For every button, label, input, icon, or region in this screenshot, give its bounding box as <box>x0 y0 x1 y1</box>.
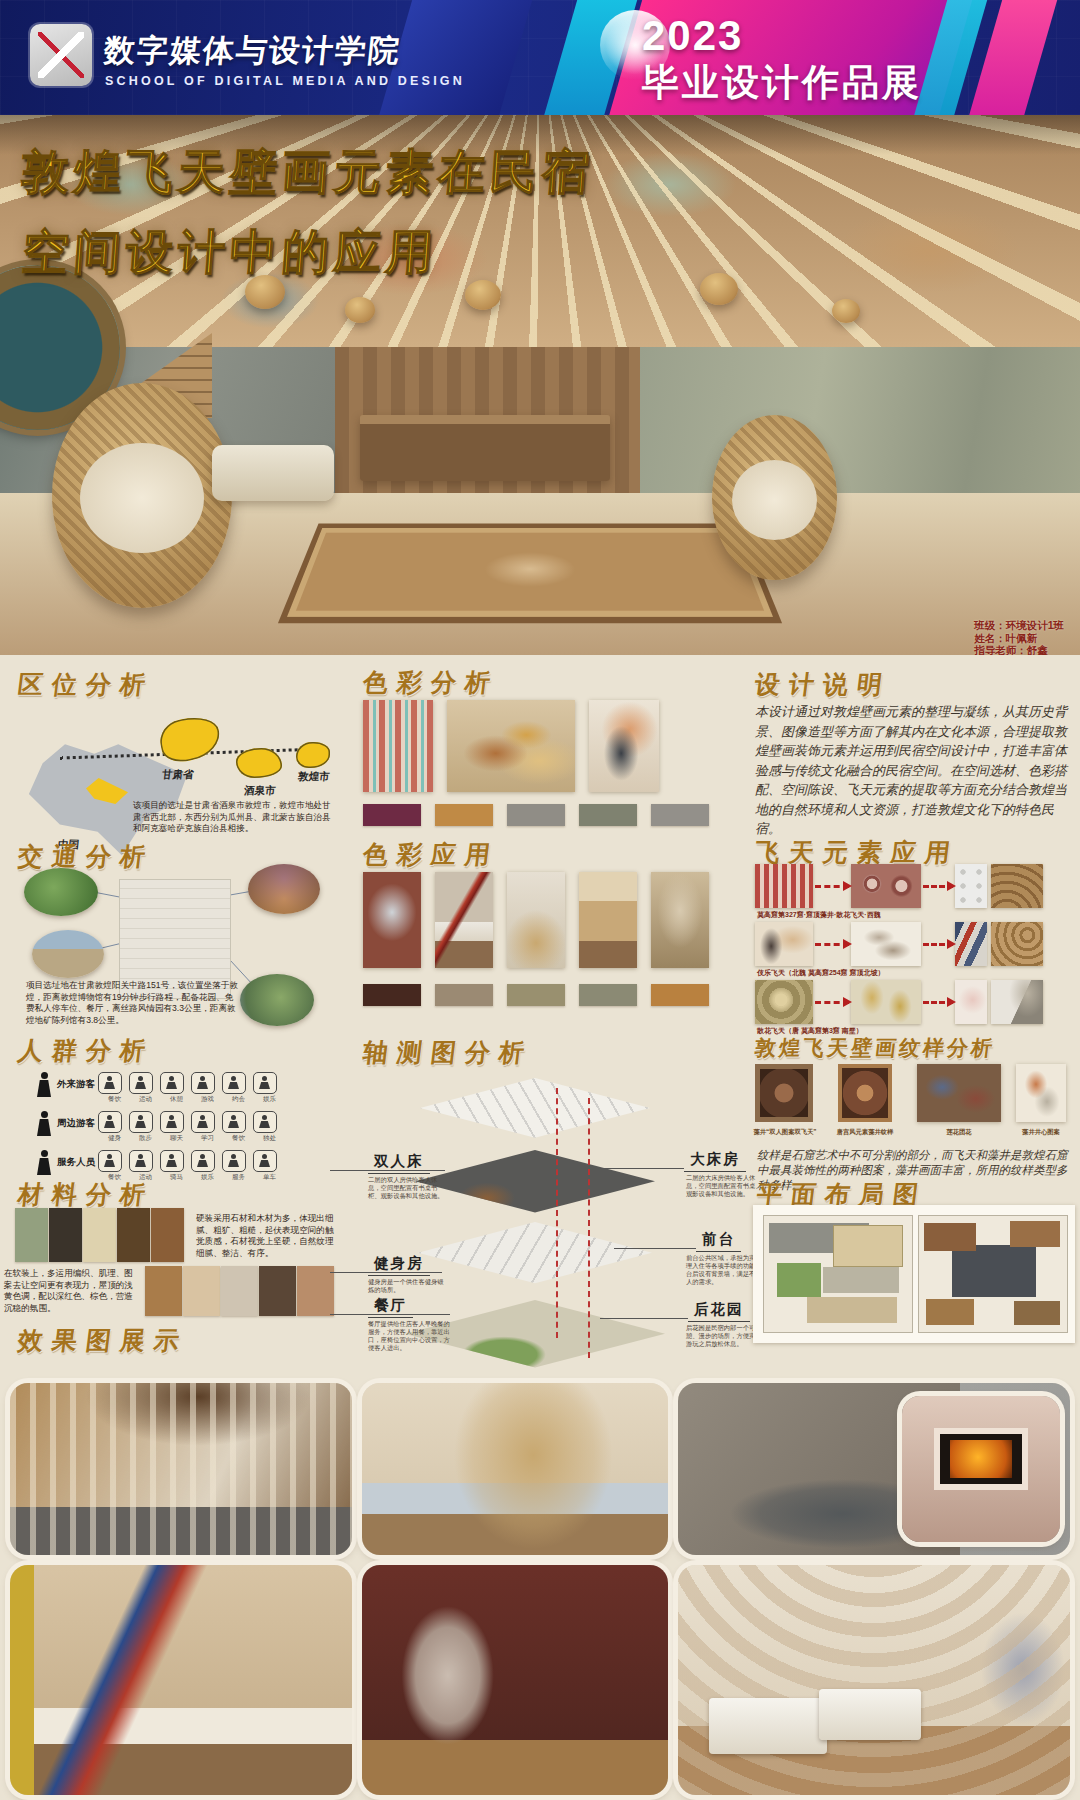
section-title-design-note: 设计说明 <box>753 668 893 701</box>
mural-source-image <box>755 864 813 908</box>
color-swatch <box>507 984 565 1006</box>
color-swatch <box>507 804 565 826</box>
axon-label-back-garden: 后花园 <box>688 1300 750 1322</box>
interior-photo-rattan-chair <box>507 872 565 968</box>
interior-photo-reception <box>579 872 637 968</box>
color-swatch <box>363 804 421 826</box>
plan-room-brown <box>926 1299 974 1325</box>
pattern-caption-4: 藻井井心图案 <box>1010 1128 1072 1137</box>
photo-aerial-oval <box>240 974 314 1026</box>
activity-label: 聊天 <box>170 1134 183 1143</box>
activity-label: 餐饮 <box>232 1134 245 1143</box>
person-icon <box>36 1150 52 1176</box>
activity-cell: 休憩 <box>161 1072 192 1104</box>
activity-cell: 散步 <box>130 1111 161 1143</box>
leader-line <box>330 1170 445 1171</box>
activity-label: 散步 <box>139 1134 152 1143</box>
axon-label-front-desk: 前台 <box>696 1230 741 1252</box>
activity-pictogram-icon <box>222 1072 246 1094</box>
location-text: 该项目的选址是甘肃省酒泉市敦煌市，敦煌市地处甘肃省西北部，东西分别为瓜州县、肃北… <box>133 800 335 835</box>
color-swatch <box>651 984 709 1006</box>
color-swatch <box>435 804 493 826</box>
activity-pictogram-icon <box>191 1150 215 1172</box>
section-title-color-application: 色彩应用 <box>361 838 501 871</box>
floor-plan-level1 <box>763 1215 913 1333</box>
analysis-color-swatches <box>363 804 723 826</box>
poster-title-line2: 空间设计中的应用 <box>20 221 440 284</box>
mural-photo-2 <box>447 700 575 792</box>
axon-desc-king-room: 二层的大床房供给客人休息，空间里面配置有书桌、观影设备和其他设施。 <box>686 1174 766 1198</box>
map-label-jiuquan: 酒泉市 <box>243 784 276 798</box>
activity-label: 游戏 <box>201 1095 214 1104</box>
section-title-axonometric: 轴测图分析 <box>361 1036 535 1069</box>
soft-material-swatches <box>145 1266 335 1316</box>
activity-pictogram-icon <box>129 1072 153 1094</box>
render-tv-lounge-inset <box>902 1396 1060 1542</box>
material-swatch <box>183 1266 220 1316</box>
section-title-location: 区位分析 <box>16 668 156 701</box>
axon-desc-double-room: 二层的双人房供给客人休息，空间里配置有书桌书柜、观影设备和其他设施。 <box>368 1176 444 1200</box>
activity-pictogram-icon <box>191 1072 215 1094</box>
interior-photo-corridor <box>651 872 709 968</box>
jiuquan-city-shape <box>236 748 282 778</box>
header-banner: 数字媒体与设计学院 SCHOOL OF DIGITAL MEDIA AND DE… <box>0 0 1080 115</box>
activity-cell: 服务 <box>223 1150 254 1182</box>
activity-pictogram-icon <box>129 1111 153 1133</box>
dunhuang-city-shape <box>296 742 330 768</box>
activity-pictogram-icon <box>253 1072 277 1094</box>
activity-cell: 运动 <box>130 1072 161 1104</box>
material-hard-text: 硬装采用石材和木材为多，体现出细腻、粗犷、粗糙，起伏表现空间的触觉质感，石材视觉… <box>196 1213 336 1259</box>
pattern-caption-3: 莲花团花 <box>925 1128 993 1137</box>
activity-pictogram-icon <box>98 1150 122 1172</box>
activity-cell: 娱乐 <box>254 1072 285 1104</box>
credit-class: 班级：环境设计1班 <box>974 619 1064 632</box>
crowd-group-label: 周边游客 <box>57 1117 99 1130</box>
axon-guide-line <box>588 1098 590 1358</box>
floor-plan-panel <box>753 1205 1075 1343</box>
activity-cell: 聊天 <box>161 1111 192 1143</box>
plan-room-brown <box>924 1223 976 1251</box>
credit-tutor: 指导老师：舒鑫 <box>974 644 1064 655</box>
axon-guide-line <box>556 1088 558 1338</box>
application-image-2 <box>991 980 1043 1024</box>
activity-cell: 独处 <box>254 1111 285 1143</box>
activity-label: 单车 <box>263 1173 276 1182</box>
color-swatch <box>363 984 421 1006</box>
leader-line <box>330 1314 450 1315</box>
chair-cushion <box>80 443 204 553</box>
activity-label: 健身 <box>108 1134 121 1143</box>
activity-cell: 健身 <box>99 1111 130 1143</box>
activity-pictogram-icon <box>253 1111 277 1133</box>
color-swatch <box>651 804 709 826</box>
school-name-cn: 数字媒体与设计学院 <box>102 30 403 72</box>
pendant-lamp <box>465 280 501 310</box>
arrow-right-icon <box>923 1001 953 1004</box>
activity-label: 餐饮 <box>108 1095 121 1104</box>
activity-label: 休憩 <box>170 1095 183 1104</box>
leader-line <box>330 1272 442 1273</box>
floor-plan-level2 <box>918 1215 1068 1333</box>
hero-lobby-image: 敦煌飞天壁画元素在民宿 空间设计中的应用 班级：环境设计1班 姓名：叶佩新 指导… <box>0 115 1080 655</box>
pattern-photo-4 <box>1016 1064 1066 1122</box>
pendant-lamp <box>700 273 738 305</box>
fly-row-3 <box>755 980 1077 1024</box>
pattern-photo-1 <box>755 1064 813 1122</box>
mural-photo-1 <box>363 700 433 792</box>
interior-photo-mural-bedroom <box>435 872 493 968</box>
plan-core-zone <box>952 1245 1036 1297</box>
section-title-material: 材料分析 <box>16 1178 156 1211</box>
section-title-pattern-analysis: 敦煌飞天壁画纹样分析 <box>753 1034 996 1062</box>
pattern-photo-3 <box>917 1064 1001 1122</box>
poster: 数字媒体与设计学院 SCHOOL OF DIGITAL MEDIA AND DE… <box>0 0 1080 1800</box>
fly-row-1 <box>755 864 1077 908</box>
school-logo <box>30 24 92 86</box>
crowd-row-tourist-nearby: 周边游客健身散步聊天学习餐饮独处 <box>36 1111 336 1143</box>
color-swatch <box>579 804 637 826</box>
fly-row-caption: 伎乐飞天（北魏 莫高窟254窟 窟顶北坡） <box>757 968 885 978</box>
pendant-lamp <box>345 297 375 323</box>
photo-garden-oval <box>24 868 98 916</box>
application-image-2 <box>991 864 1043 908</box>
activity-label: 骑马 <box>170 1173 183 1182</box>
plan-garden-lawn <box>777 1263 821 1297</box>
leader-line <box>614 1248 696 1249</box>
activity-cell: 餐饮 <box>99 1072 130 1104</box>
activity-pictogram-icon <box>191 1111 215 1133</box>
activity-cell: 游戏 <box>192 1072 223 1104</box>
application-color-swatches <box>363 984 723 1006</box>
fly-row-caption: 莫高窟第327窟·窟顶藻井·散花飞天·西魏 <box>757 910 881 920</box>
activity-cell: 约会 <box>223 1072 254 1104</box>
activity-cell: 娱乐 <box>192 1150 223 1182</box>
rattan-cocoon-chair-left <box>52 383 232 608</box>
activity-pictogram-icon <box>160 1111 184 1133</box>
school-name-en: SCHOOL OF DIGITAL MEDIA AND DESIGN <box>105 74 465 88</box>
crowd-group-label: 服务人员 <box>57 1156 99 1169</box>
lobby-sofa <box>212 445 334 501</box>
color-swatch <box>579 984 637 1006</box>
twin-bed-left <box>709 1698 827 1753</box>
crowd-group-label: 外来游客 <box>57 1078 99 1091</box>
photo-city-oval <box>32 930 104 978</box>
activity-label: 独处 <box>263 1134 276 1143</box>
material-swatch <box>117 1208 150 1262</box>
plan-room-brown <box>1014 1301 1060 1325</box>
axon-label-king-room: 大床房 <box>684 1150 746 1172</box>
arrow-right-icon <box>923 943 953 946</box>
person-icon <box>36 1111 52 1137</box>
patterned-carpet <box>278 524 782 624</box>
interior-photo-arch-bedroom <box>363 872 421 968</box>
rattan-cocoon-chair-right <box>712 415 837 580</box>
credit-name: 姓名：叶佩新 <box>974 632 1064 645</box>
render-bedroom-woven-arch <box>362 1383 668 1555</box>
material-swatch <box>297 1266 334 1316</box>
plan-road <box>823 1267 899 1293</box>
axon-desc-restaurant: 餐厅提供给住店客人早晚餐的服务，方便客人用餐，靠近出口，座椅位置向中心设置，方便… <box>368 1320 450 1352</box>
pattern-caption-2: 唐宫风元素藻井纹样 <box>832 1128 898 1137</box>
render-bedroom-abstract-mural <box>10 1565 352 1795</box>
activity-label: 服务 <box>232 1173 245 1182</box>
mural-source-image <box>755 922 813 966</box>
activity-cell: 骑马 <box>161 1150 192 1182</box>
color-swatch <box>435 984 493 1006</box>
material-swatch <box>221 1266 258 1316</box>
activity-pictogram-icon <box>222 1111 246 1133</box>
person-icon <box>36 1072 52 1098</box>
material-swatch <box>15 1208 48 1262</box>
arrow-right-icon <box>923 885 953 888</box>
activity-label: 约会 <box>232 1095 245 1104</box>
material-swatch <box>151 1208 184 1262</box>
activity-cell: 学习 <box>192 1111 223 1143</box>
crowd-row-tourist-outside: 外来游客餐饮运动休憩游戏约会娱乐 <box>36 1072 336 1104</box>
map-label-dunhuang: 敦煌市 <box>297 770 330 784</box>
pattern-photo-2 <box>838 1064 892 1122</box>
arrow-right-icon <box>815 943 849 946</box>
activity-pictogram-icon <box>253 1150 277 1172</box>
extracted-pattern-image <box>851 980 921 1024</box>
exhibition-year: 2023 <box>642 12 743 60</box>
leader-line <box>600 1168 684 1169</box>
reception-desk <box>360 415 610 481</box>
section-title-renders: 效果图展示 <box>16 1324 190 1357</box>
activity-label: 娱乐 <box>263 1095 276 1104</box>
application-image-2 <box>991 922 1043 966</box>
section-title-color-analysis: 色彩分析 <box>361 666 501 699</box>
plan-lobby-zone <box>833 1225 903 1267</box>
mural-photo-3 <box>589 700 659 792</box>
material-swatch <box>83 1208 116 1262</box>
activity-pictogram-icon <box>160 1150 184 1172</box>
mural-source-image <box>755 980 813 1024</box>
extracted-pattern-image <box>851 864 921 908</box>
render-bedroom-red-arch <box>362 1565 668 1795</box>
traffic-text: 项目选址地在甘肃敦煌阳关中路151号，该位置坐落于敦煌，距离敦煌博物馆有19分钟… <box>26 980 238 1026</box>
chair-cushion <box>732 460 817 540</box>
activity-cell: 餐饮 <box>223 1111 254 1143</box>
design-note-text: 本设计通过对敦煌壁画元素的整理与凝练，从其历史背景、图像造型等方面了解其内在文化… <box>755 702 1077 839</box>
exhibition-title: 毕业设计作品展 <box>642 58 922 108</box>
activity-pictogram-icon <box>222 1150 246 1172</box>
author-credits: 班级：环境设计1班 姓名：叶佩新 指导老师：舒鑫 <box>974 619 1064 655</box>
tv-picture <box>950 1440 1012 1478</box>
activity-cell: 单车 <box>254 1150 285 1182</box>
arrow-right-icon <box>815 885 849 888</box>
material-swatch <box>259 1266 296 1316</box>
activity-pictogram-icon <box>160 1072 184 1094</box>
material-swatch <box>145 1266 182 1316</box>
poster-title-line1: 敦煌飞天壁画元素在民宿 <box>20 141 596 204</box>
plan-room-brown <box>1010 1221 1060 1247</box>
rock-wall-right <box>640 347 1080 497</box>
leader-line <box>600 1318 688 1319</box>
twin-bed-right <box>819 1689 921 1740</box>
photo-gate-tower-oval <box>248 864 320 914</box>
tv-screen <box>940 1434 1022 1484</box>
activity-pictogram-icon <box>129 1150 153 1172</box>
axon-desc-gym: 健身房是一个供住客健身锻炼的场所。 <box>368 1278 448 1294</box>
material-soft-text: 在软装上，多运用编织、肌理、图案去让空间更有表现力，屋顶的浅黄色调，配以深红色、… <box>4 1268 140 1314</box>
logo-mark-icon <box>38 32 84 78</box>
extracted-pattern-image <box>851 922 921 966</box>
plan-rooms-zone <box>807 1297 897 1323</box>
activity-label: 学习 <box>201 1134 214 1143</box>
activity-pictogram-icon <box>98 1111 122 1133</box>
activity-label: 娱乐 <box>201 1173 214 1182</box>
map-label-gansu: 甘肃省 <box>161 768 194 782</box>
material-swatch <box>49 1208 82 1262</box>
activity-label: 运动 <box>139 1095 152 1104</box>
activity-pictogram-icon <box>98 1072 122 1094</box>
render-dining-room <box>10 1383 352 1555</box>
section-title-crowd: 人群分析 <box>16 1034 156 1067</box>
hard-material-swatches <box>15 1208 185 1262</box>
crowd-analysis-grid: 外来游客餐饮运动休憩游戏约会娱乐周边游客健身散步聊天学习餐饮独处服务人员餐饮运动… <box>36 1072 336 1189</box>
pendant-lamp <box>832 299 860 323</box>
render-twin-bedroom <box>678 1565 1070 1795</box>
arrow-right-icon <box>815 1001 849 1004</box>
fly-row-2 <box>755 922 1077 966</box>
pattern-caption-1: 藻井“双人图案双飞天” <box>748 1128 822 1137</box>
